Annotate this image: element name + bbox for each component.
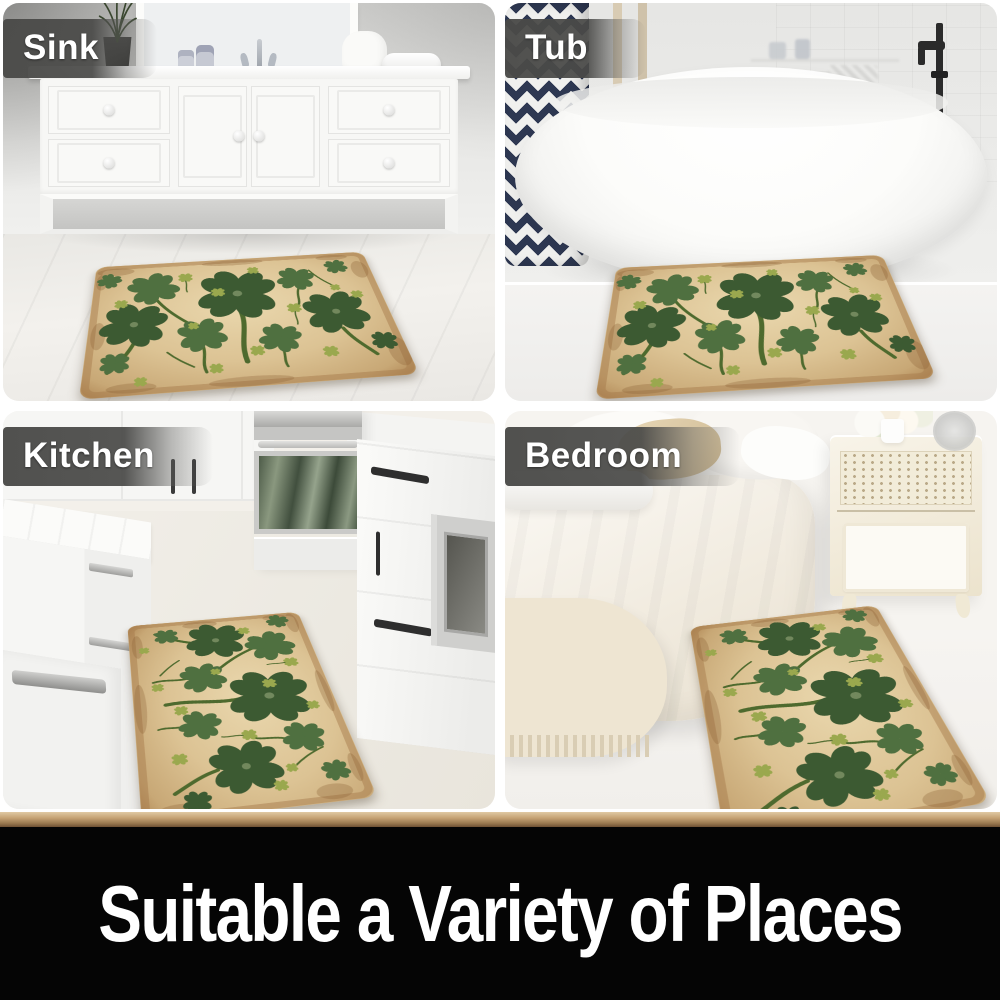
vanity-drawer xyxy=(328,86,449,134)
vanity-drawer xyxy=(48,139,169,187)
label-bedroom-text: Bedroom xyxy=(525,436,682,475)
label-kitchen: Kitchen xyxy=(3,427,213,486)
label-sink: Sink xyxy=(3,19,157,78)
floor-faucet-handle xyxy=(931,71,948,78)
vanity-drawer xyxy=(48,86,169,134)
clover-mat-graphic xyxy=(79,252,419,400)
cabinet-handle xyxy=(374,619,432,637)
blanket-fringe xyxy=(505,735,650,757)
tub-rim xyxy=(554,77,948,129)
oven-door-glass xyxy=(254,451,362,534)
label-tub-text: Tub xyxy=(525,28,588,67)
built-in-microwave xyxy=(431,515,495,654)
clover-mat xyxy=(595,255,936,400)
clover-mat xyxy=(79,252,419,400)
vanity-door xyxy=(251,86,320,188)
product-image: Sink Tub xyxy=(0,0,1000,1000)
vanity-mirror-disc xyxy=(933,411,976,451)
label-sink-text: Sink xyxy=(23,28,99,67)
microwave-window xyxy=(444,532,488,637)
panel-tub: Tub xyxy=(505,3,997,401)
cabinet-handle xyxy=(377,531,381,576)
vanity-door xyxy=(178,86,247,188)
stove-drawer xyxy=(254,537,362,570)
flower-vase xyxy=(881,419,903,443)
bottle xyxy=(769,42,787,59)
stove-cooktop xyxy=(254,411,362,427)
nightstand-leg xyxy=(955,594,971,618)
bottle xyxy=(795,39,810,59)
nightstand-divider xyxy=(837,510,974,512)
oven-handle xyxy=(258,441,358,448)
cabinet-handle xyxy=(371,466,429,484)
vanity-cabinet xyxy=(40,79,458,194)
caption-banner: Suitable a Variety of Places xyxy=(0,827,1000,1000)
vanity-drawer xyxy=(328,139,449,187)
clover-mat-graphic xyxy=(595,255,936,400)
dishwasher-handle xyxy=(12,670,107,694)
caption-text: Suitable a Variety of Places xyxy=(98,868,902,960)
label-bedroom: Bedroom xyxy=(505,427,740,486)
label-tub: Tub xyxy=(505,19,646,78)
panel-bedroom: Bedroom xyxy=(505,411,997,809)
stove xyxy=(254,411,362,570)
dishwasher xyxy=(3,650,121,809)
nightstand-lower-panel xyxy=(843,523,968,593)
scene-grid: Sink Tub xyxy=(0,0,1000,812)
floor-faucet-nozzle xyxy=(918,47,924,65)
stove-control-panel xyxy=(254,427,362,440)
vanity-floor-shadow xyxy=(42,234,455,254)
nightstand xyxy=(830,435,983,618)
vanity-open-shelf xyxy=(40,194,458,234)
nightstand-carved-drawer xyxy=(840,451,971,504)
shelf-line xyxy=(751,59,899,62)
panel-sink: Sink xyxy=(3,3,495,401)
label-kitchen-text: Kitchen xyxy=(23,436,155,475)
panel-kitchen: Kitchen xyxy=(3,411,495,809)
bronze-divider xyxy=(0,812,1000,827)
